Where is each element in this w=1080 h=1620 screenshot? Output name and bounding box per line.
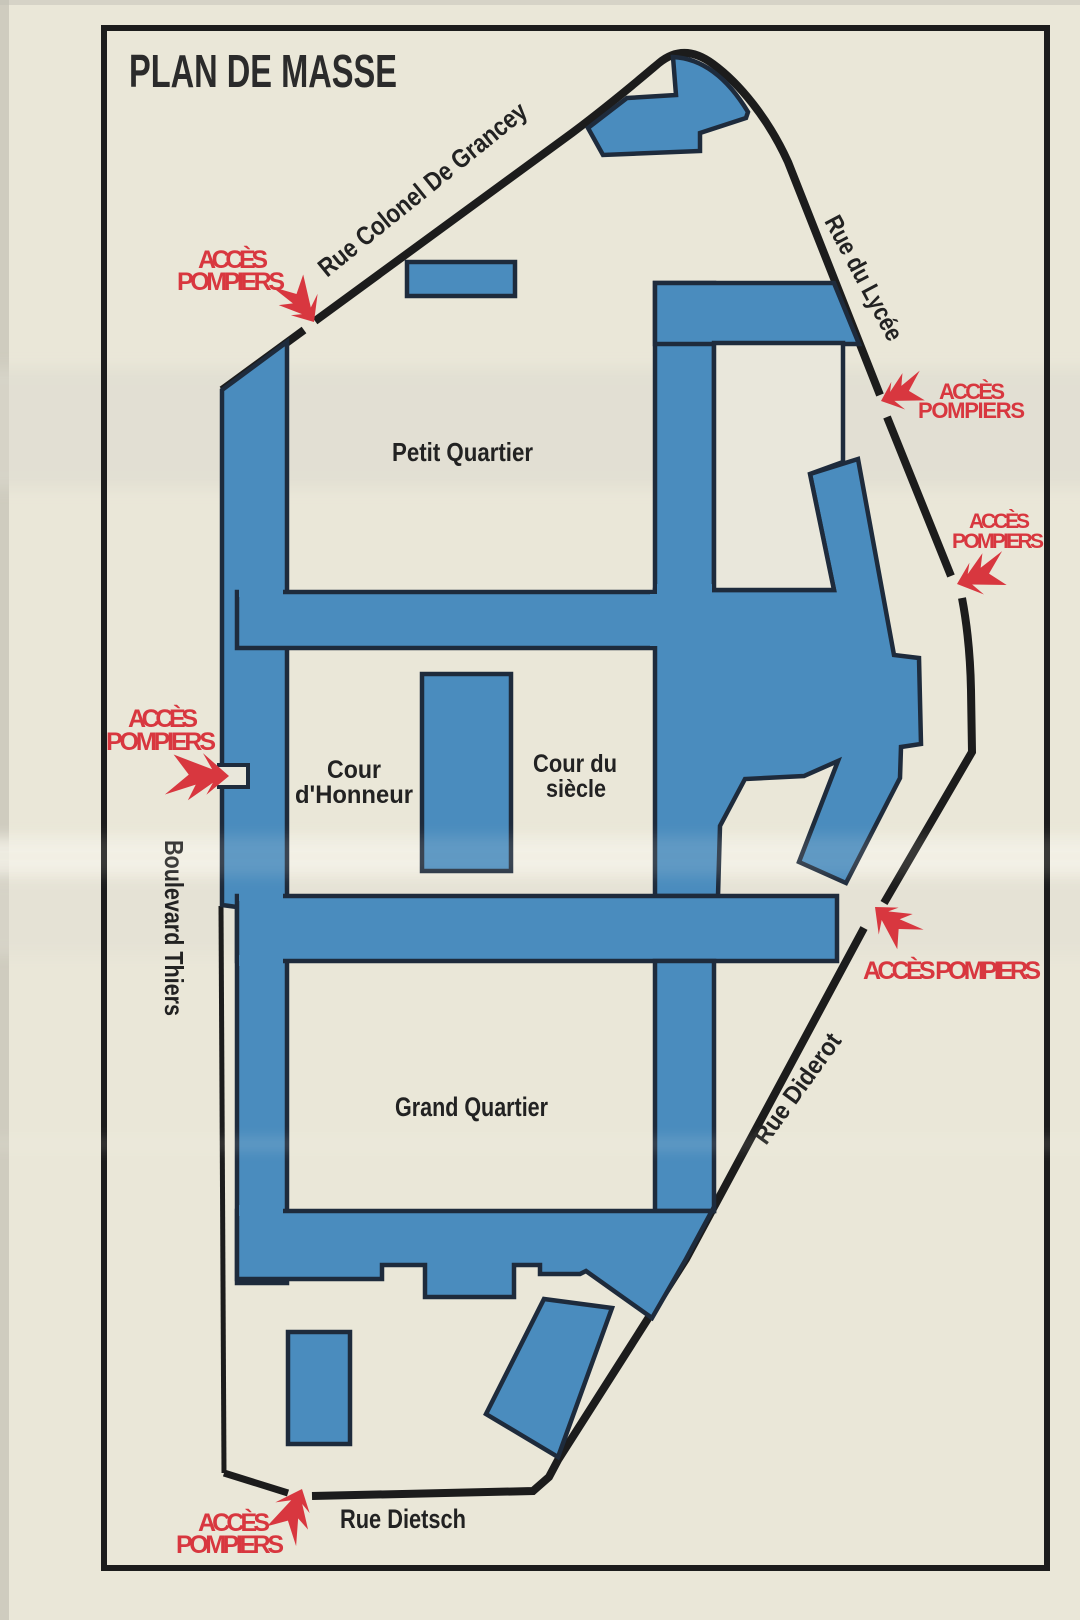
svg-text:Rue Dietsch: Rue Dietsch (340, 1504, 466, 1534)
svg-text:Cour: Cour (327, 756, 381, 784)
svg-text:siècle: siècle (546, 775, 606, 803)
svg-text:PLAN DE MASSE: PLAN DE MASSE (129, 45, 397, 97)
svg-text:POMPIERS: POMPIERS (918, 398, 1025, 423)
svg-text:Grand Quartier: Grand Quartier (395, 1092, 548, 1122)
svg-text:POMPIERS: POMPIERS (177, 268, 285, 296)
svg-text:POMPIERS: POMPIERS (176, 1531, 284, 1559)
svg-text:POMPIERS: POMPIERS (106, 728, 216, 756)
svg-text:Cour du: Cour du (533, 750, 617, 778)
svg-text:d'Honneur: d'Honneur (295, 781, 413, 809)
svg-text:Petit Quartier: Petit Quartier (392, 437, 533, 467)
svg-text:ACCÈS POMPIERS: ACCÈS POMPIERS (863, 956, 1041, 985)
svg-text:POMPIERS: POMPIERS (952, 530, 1044, 553)
